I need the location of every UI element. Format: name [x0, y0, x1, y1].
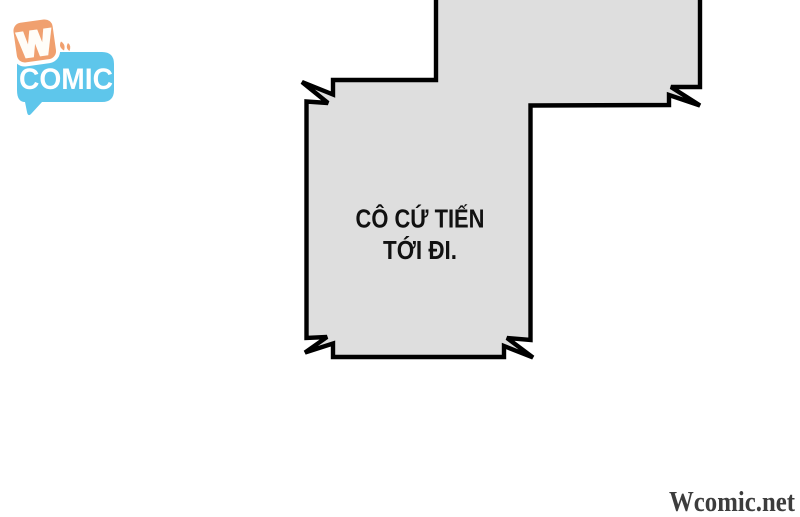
svg-text:Wcomic.net: Wcomic.net — [669, 487, 796, 517]
svg-text:TỚI ĐI.: TỚI ĐI. — [383, 235, 457, 265]
svg-text:CÔ CỨ TIẾN: CÔ CỨ TIẾN — [356, 204, 485, 234]
svg-text:W: W — [16, 22, 54, 65]
svg-text:COMIC: COMIC — [19, 63, 113, 96]
